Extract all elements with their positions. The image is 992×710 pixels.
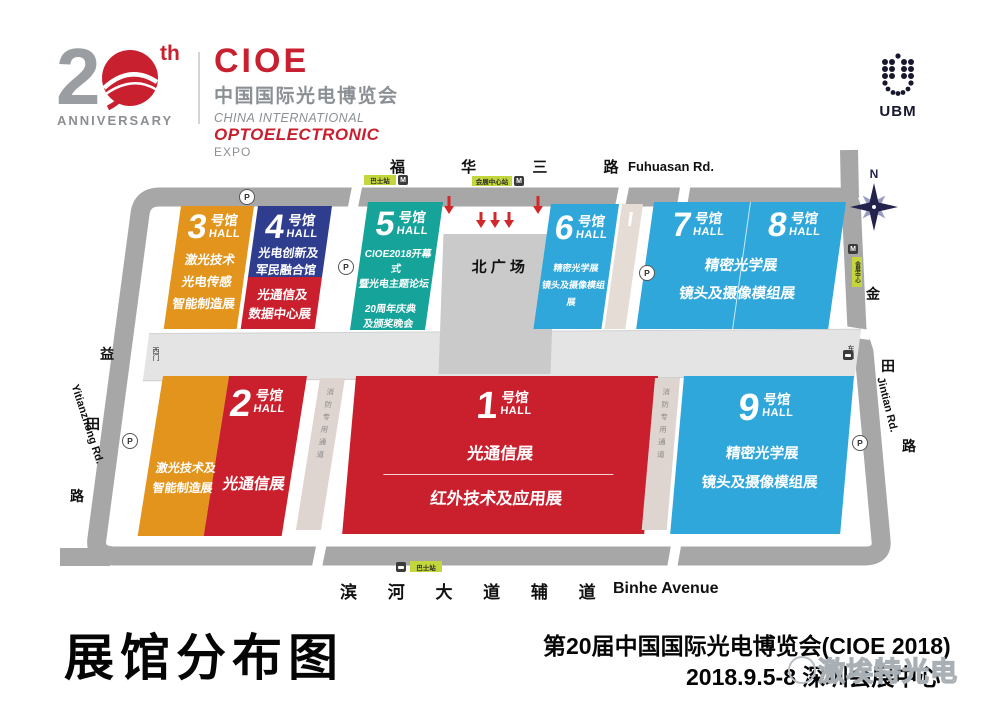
hall-9: 9 号馆HALL 精密光学展 镜头及摄像模组展: [670, 376, 854, 534]
hall-2-left-line: 激光技术及: [147, 458, 225, 478]
bus-icon: [843, 350, 853, 360]
hall-7-number: 7: [670, 209, 693, 241]
hall-6-line: 精密光学展: [541, 260, 611, 277]
metro-letter: M: [850, 246, 856, 253]
road-bottom-cn: 滨 河 大 道 辅 道: [340, 578, 596, 603]
hall-5-number: 5: [373, 208, 396, 240]
hall-7-en: HALL: [692, 226, 725, 239]
hall-4-top-line: 光电创新及: [250, 245, 326, 262]
hall-5-en: HALL: [396, 225, 429, 238]
hall-8-cn: 号馆: [790, 212, 819, 226]
hall-9-number: 9: [737, 390, 761, 426]
hall-5-line: 暨光电主题论坛: [355, 277, 432, 292]
lane-marking: [628, 212, 633, 226]
hall-5-line: CIOE2018开幕式: [357, 247, 436, 277]
hall-3-line: 光电传感: [169, 272, 245, 294]
road-right-cn-3: 路: [902, 436, 916, 456]
hall-5-cn: 号馆: [398, 211, 427, 225]
hall-1-en: HALL: [500, 405, 532, 418]
road-bottom-en: Binhe Avenue: [613, 580, 719, 598]
hall-3-cn: 号馆: [210, 214, 239, 228]
road-left-cn-3: 路: [70, 486, 84, 506]
road-top-cn: 福 华 三 路: [390, 156, 619, 177]
hall-1-number: 1: [475, 388, 499, 424]
hall-8-number: 8: [766, 209, 789, 241]
road-left-cn-1: 益: [100, 344, 114, 364]
hall-1-cn: 号馆: [501, 391, 529, 405]
right-road-spur: [849, 150, 850, 198]
hall-1: 1 号馆HALL 光通信展 红外技术及应用展: [342, 376, 658, 534]
hall-4-number: 4: [263, 211, 286, 243]
metro-station-badge: 会展中心站: [472, 176, 512, 186]
west-gate-label: 西门: [150, 347, 160, 361]
hall-3-line: 激光技术: [172, 250, 248, 272]
watermark: 激埃特光电: [788, 650, 958, 689]
hall-4-bottom-line: 光通信及: [244, 286, 321, 305]
metro-icon: M: [848, 244, 858, 254]
hall-5-line: 20周年庆典: [352, 302, 429, 317]
bus-stop-badge: 巴士站: [364, 175, 396, 185]
hall-2-en: HALL: [252, 403, 285, 416]
watermark-text: 激埃特光电: [818, 650, 958, 689]
parking-letter: P: [343, 262, 349, 272]
hall-2-left-line: 智能制造展: [144, 478, 222, 498]
hall-8-en: HALL: [788, 226, 821, 239]
hall-4-en: HALL: [285, 228, 318, 241]
bus-icon: [396, 562, 406, 572]
road-right-cn-1: 金: [866, 284, 880, 304]
hall-7-8: 7 号馆HALL 8 号馆HALL 精密光学展 镜头及摄像模组展: [636, 202, 846, 329]
hall-9-en: HALL: [762, 407, 794, 420]
hall-9-cn: 号馆: [763, 393, 791, 407]
parking-letter: P: [127, 436, 133, 446]
hall-4-bottom-line: 数据中心展: [241, 305, 318, 324]
hall-6-number: 6: [553, 212, 576, 244]
hall-5-line: 及颁奖晚会: [350, 317, 427, 332]
hall-6-line: 镜头及摄像模组展: [536, 277, 609, 311]
parking-icon: P: [852, 435, 868, 451]
metro-icon: M: [398, 175, 408, 185]
hall-6-cn: 号馆: [577, 215, 606, 229]
hall-1-divider: [383, 474, 613, 475]
hall-3-en: HALL: [208, 228, 241, 241]
parking-icon: P: [239, 189, 255, 205]
north-plaza-label: 北 广 场: [442, 256, 555, 277]
metro-letter: M: [400, 177, 406, 184]
hall-1-line1: 光通信展: [348, 440, 652, 464]
hall-9-line: 精密光学展: [676, 440, 849, 469]
hall-2-cn: 号馆: [254, 389, 283, 403]
hall-4-cn: 号馆: [287, 214, 316, 228]
hall-1-line2: 红外技术及应用展: [344, 485, 648, 509]
compass-north-label: N: [870, 167, 879, 181]
hall-2-number: 2: [227, 386, 254, 422]
hall-7-cn: 号馆: [694, 212, 723, 226]
parking-icon: P: [639, 265, 655, 281]
hall-9-line: 镜头及摄像模组展: [673, 469, 846, 498]
parking-icon: P: [122, 433, 138, 449]
hall-3-line: 智能制造展: [166, 294, 242, 316]
bus-stop-badge: 巴士站: [410, 561, 442, 572]
road-right-cn-2: 田: [881, 356, 895, 376]
parking-letter: P: [644, 268, 650, 278]
metro-icon: M: [514, 176, 524, 186]
hall-3-number: 3: [186, 211, 209, 243]
parking-letter: P: [244, 192, 250, 202]
hall-2: 2 号馆HALL 激光技术及 智能制造展 光通信展: [138, 376, 307, 536]
watermark-logo-icon: [788, 656, 816, 684]
page: 2 th ANNIVERSARY CIOE 中国国际光电博览会 CHINA IN…: [0, 0, 992, 710]
parking-letter: P: [857, 438, 863, 448]
station-badge: 会展中心: [852, 257, 862, 287]
hall-6-en: HALL: [575, 229, 608, 242]
metro-letter: M: [516, 178, 522, 185]
road-top-en: Fuhuasan Rd.: [628, 159, 714, 174]
parking-icon: P: [338, 259, 354, 275]
hall-4-top-line: 军民融合馆: [248, 262, 324, 279]
hall-2-right-line: 光通信展: [216, 472, 291, 494]
